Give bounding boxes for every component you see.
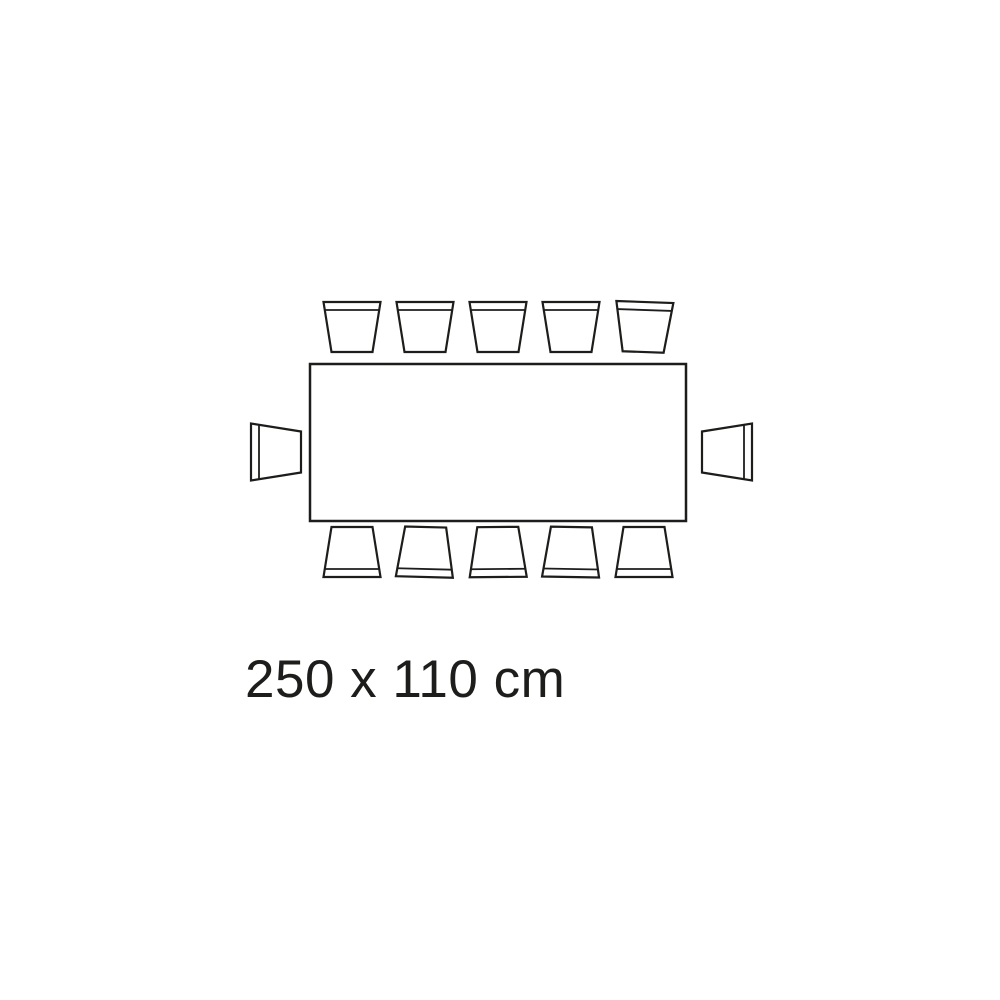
chair-bottom-4 [542, 527, 600, 578]
chair-left-1 [251, 424, 301, 481]
chair-bottom-2 [396, 526, 454, 577]
chair-bottom-3 [469, 527, 526, 577]
chair-top-1 [324, 302, 381, 352]
chair-bottom-1 [324, 527, 381, 577]
chair-top-3 [470, 302, 527, 352]
chair-right-1 [702, 424, 752, 481]
dimensions-label: 250 x 110 cm [245, 649, 565, 710]
chair-top-4 [543, 302, 600, 352]
table-seating-diagram [0, 0, 1000, 1000]
floor-plan: 250 x 110 cm [0, 0, 1000, 1000]
chair-top-2 [397, 302, 454, 352]
chair-bottom-5 [616, 527, 673, 577]
table [310, 364, 686, 521]
chair-top-5 [615, 301, 674, 353]
